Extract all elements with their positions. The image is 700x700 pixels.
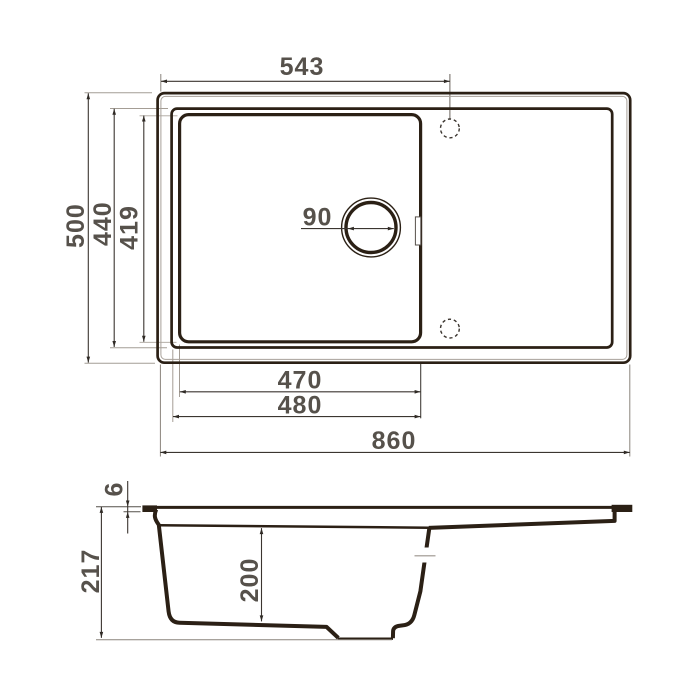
svg-text:200: 200 — [236, 558, 264, 603]
svg-text:860: 860 — [372, 427, 417, 455]
svg-text:543: 543 — [280, 53, 325, 81]
svg-text:6: 6 — [101, 482, 129, 497]
svg-text:470: 470 — [278, 367, 323, 395]
svg-text:440: 440 — [89, 201, 117, 246]
svg-text:500: 500 — [62, 203, 90, 248]
svg-text:480: 480 — [278, 391, 323, 419]
svg-text:217: 217 — [77, 549, 105, 594]
svg-text:419: 419 — [116, 205, 144, 250]
svg-text:90: 90 — [303, 204, 333, 232]
